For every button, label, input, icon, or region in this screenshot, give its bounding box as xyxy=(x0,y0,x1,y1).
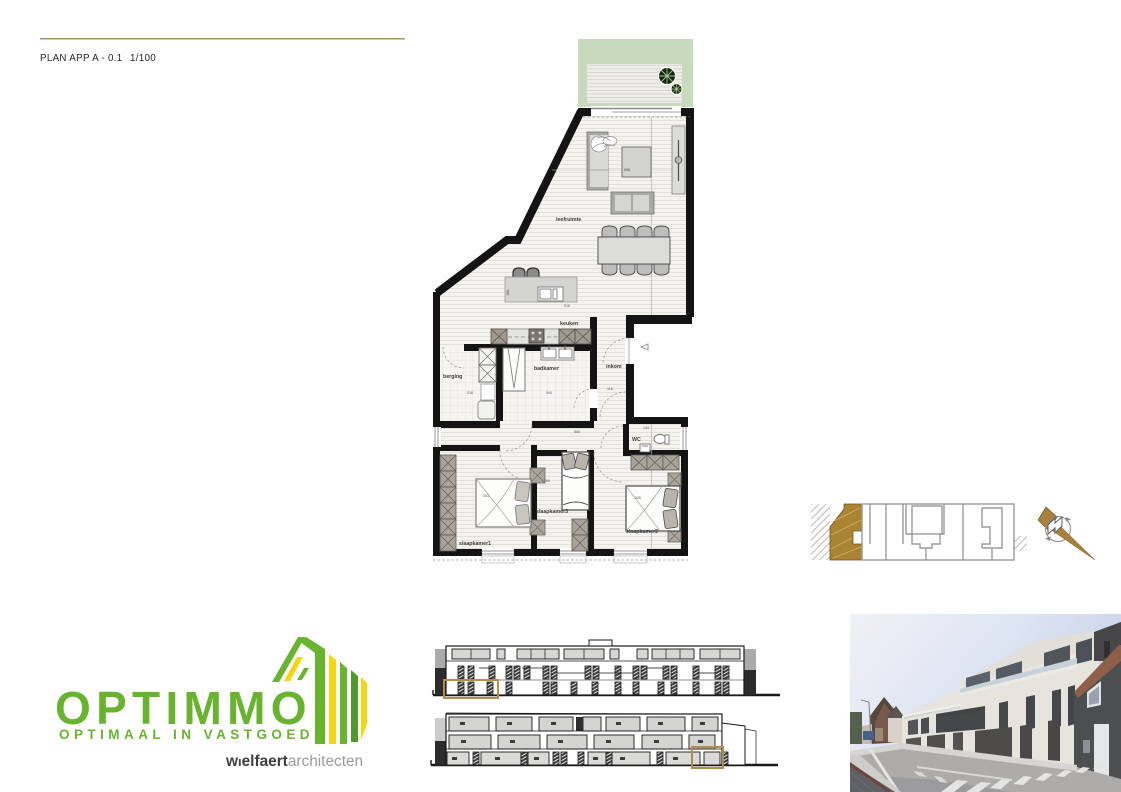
svg-text:340: 340 xyxy=(546,391,552,395)
svg-text:144: 144 xyxy=(643,426,649,430)
svg-text:OPTIMAAL IN VASTGOED: OPTIMAAL IN VASTGOED xyxy=(59,727,314,742)
svg-text:WC: WC xyxy=(632,437,641,443)
svg-text:slaapkamer1: slaapkamer1 xyxy=(459,541,491,547)
svg-text:696: 696 xyxy=(624,168,630,172)
svg-text:116: 116 xyxy=(607,387,613,391)
svg-text:PLAN APP A - 0.1: PLAN APP A - 0.1 xyxy=(40,53,123,64)
svg-text:860: 860 xyxy=(574,430,580,434)
svg-text:341: 341 xyxy=(483,494,489,498)
svg-text:366: 366 xyxy=(506,290,510,296)
svg-text:wıelfaertarchitecten: wıelfaertarchitecten xyxy=(225,753,363,770)
svg-text:269: 269 xyxy=(544,479,550,483)
svg-text:berging: berging xyxy=(443,374,462,380)
svg-text:slaapkamer2: slaapkamer2 xyxy=(626,529,658,535)
svg-text:1/100: 1/100 xyxy=(130,53,156,64)
svg-text:916: 916 xyxy=(564,304,570,308)
svg-text:216: 216 xyxy=(467,391,473,395)
svg-text:badkamer: badkamer xyxy=(534,366,559,372)
svg-text:326: 326 xyxy=(635,496,641,500)
svg-text:keuken: keuken xyxy=(560,321,578,327)
svg-text:inkom: inkom xyxy=(606,364,622,370)
svg-text:slaapkamer3: slaapkamer3 xyxy=(536,509,568,515)
svg-text:leefruimte: leefruimte xyxy=(556,217,581,223)
